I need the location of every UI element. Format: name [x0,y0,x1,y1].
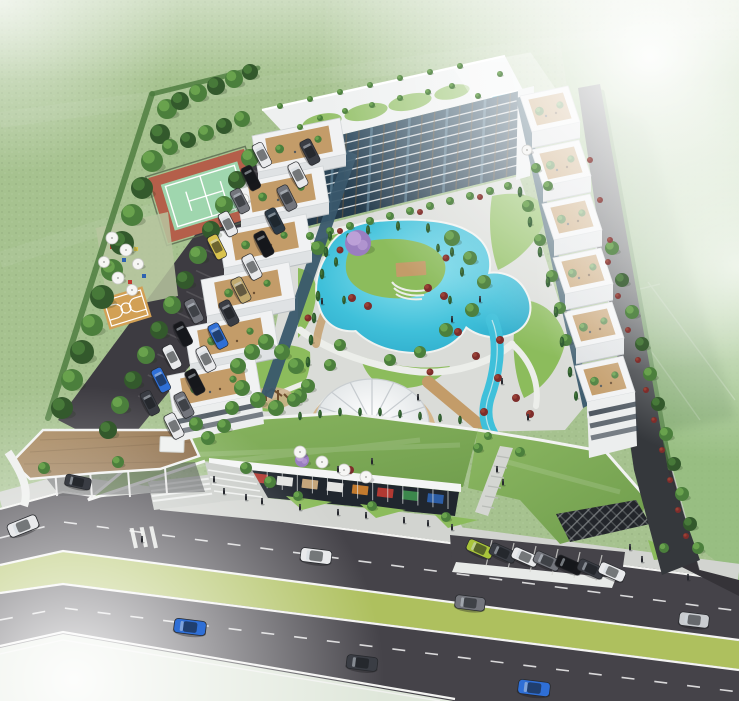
render-canvas [0,0,739,701]
corner-fade-top [0,0,739,701]
